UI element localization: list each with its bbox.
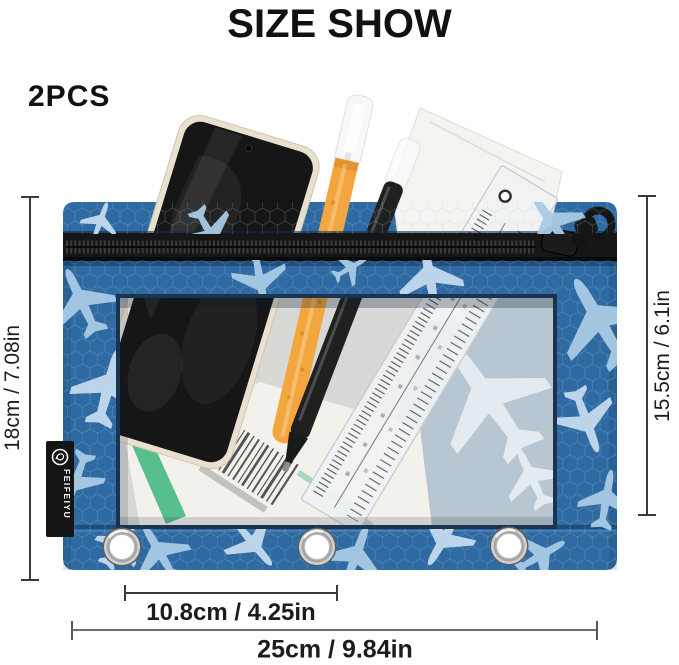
dim-height-total-label: 18cm / 7.08in [1, 325, 25, 451]
brand-tag-label: FEIFEIYU [62, 469, 72, 519]
brand-tag: FEIFEIYU [46, 441, 74, 537]
dim-width-total-label: 25cm / 9.84in [257, 636, 413, 665]
size-show-figure: SIZE SHOW 2PCS [0, 0, 679, 665]
dim-grommet-spacing-label: 10.8cm / 4.25in [146, 599, 315, 627]
grommet [103, 528, 142, 567]
grommet [298, 528, 337, 567]
grommet [490, 527, 529, 566]
product-photo: FEIFEIYU [0, 0, 679, 665]
dim-height-body-label: 15.5cm / 6.1in [651, 290, 675, 422]
